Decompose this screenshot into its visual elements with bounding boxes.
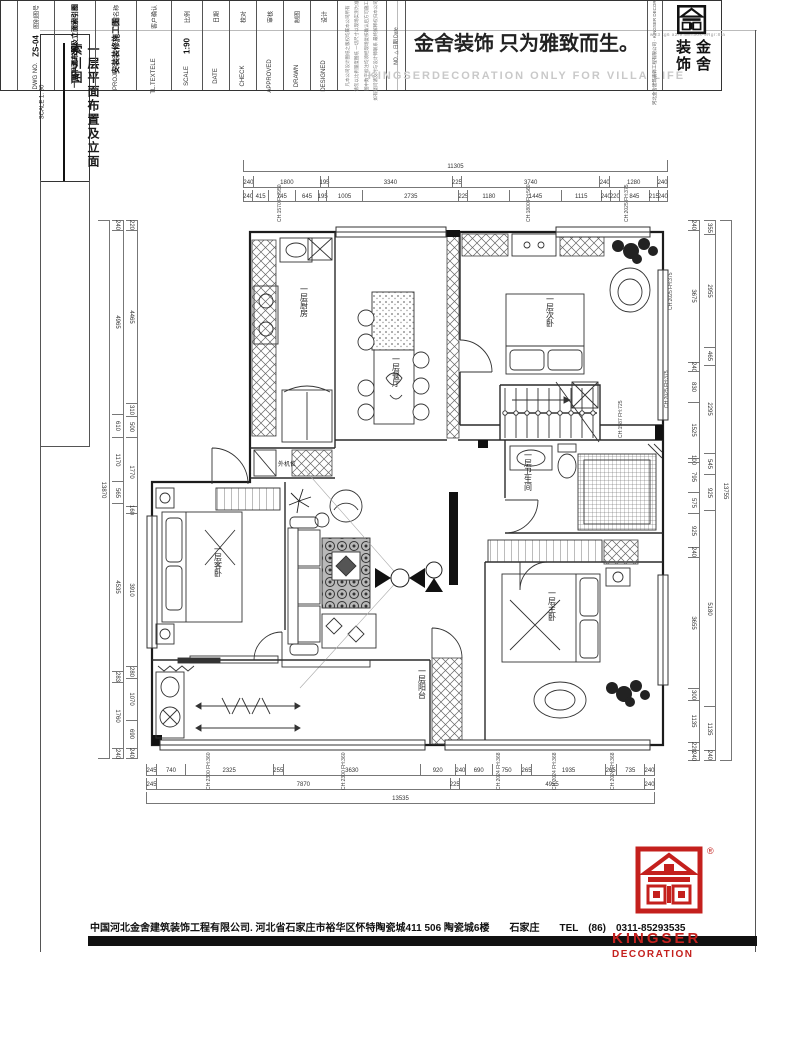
tb-label-cn: 校对: [239, 11, 248, 23]
company-address-line: 中国河北金舍建筑装饰工程有限公司. 河北省石家庄市裕华区怀特陶瓷城411 506…: [90, 919, 690, 934]
annotation: CH:2024 FH:368: [496, 752, 502, 790]
room-label-master: 一层主卧: [548, 589, 556, 622]
brand-kingser-text: KINGSER: [612, 930, 701, 947]
tb-label-en: DRAWN: [294, 65, 300, 87]
balcony-fixtures: [156, 656, 370, 738]
stamp-char-left: 装饰: [672, 39, 693, 73]
annotation: CH:2025 FH:375: [664, 370, 670, 408]
tb-label-en: APPROVED: [267, 59, 273, 92]
tb-label-en: TL.TEXTELE: [151, 58, 157, 93]
tb-label-en: TITLE: [72, 68, 78, 84]
tb-note: 如有疑问请及时与设计师联系 最终解释权归本公司所有: [373, 0, 379, 100]
annotation: CH:1587 FH:725: [618, 400, 624, 438]
brand-watermark: KINGSERDECORATION ONLY FOR VILLA LIFE: [368, 70, 685, 82]
guest-furniture: [156, 488, 280, 671]
frame-left-line: [40, 446, 41, 952]
stairs: [503, 382, 599, 442]
tb-label-cn: 日期: [212, 11, 221, 23]
room-label-kitchen: 一层厨房: [300, 285, 308, 318]
annotation: CH:1570 FH:950: [277, 184, 283, 222]
tb-col-approved: 审核 APPROVED: [257, 1, 284, 90]
annotation: CH:2300 FH:360: [341, 752, 347, 790]
annotation: CH:2024 FH:368: [610, 752, 616, 790]
sheet-title-box-empty: [40, 180, 90, 447]
tb-label-cn: 比例: [183, 11, 192, 23]
tb-value: ZS-04: [32, 35, 41, 57]
floor-plan-drawing: 一层厨房 一层餐厅 一层次卧 一层卫生间 一层主卧 一层客卧 一层阳台 外机位 …: [90, 148, 770, 820]
tb-label-en: CHECK: [240, 65, 246, 86]
room-label-balcony: 一层阳台: [418, 667, 426, 700]
tb-label-en: DESIGNED: [321, 60, 327, 91]
annotation: CH:2025 FH:375: [624, 184, 630, 222]
tb-value: 1:90: [183, 37, 192, 53]
tb-col-scale: 比例 1:90 SCALE: [172, 1, 203, 90]
drawing-sheet: 一层平面布置及立面索引图 SCALE 1: 90 w:r3 tg6 a2/9:5…: [0, 0, 800, 1052]
tb-col-dwg-no: 图别图号 ZS-04 DWG NO.: [18, 1, 55, 90]
tb-label-en: SCALE: [184, 66, 190, 86]
tb-col-project: 工程名称 安装装修施工图 PROJECT: [96, 1, 137, 90]
tb-label-cn: 图别图号: [32, 5, 41, 29]
tb-label-cn: 制图: [293, 11, 302, 23]
tb-slogan-area: 金舍装饰 只为雅致而生。 KINGSERDECORATION ONLY FOR …: [406, 1, 648, 90]
annotation: CH:2024 FH:368: [552, 752, 558, 790]
brand-slogan: 金舍装饰 只为雅致而生。: [414, 27, 639, 56]
tb-col-check: 校对 CHECK: [230, 1, 257, 90]
room-label-guest: 一层客卧: [214, 545, 222, 578]
bedroom2-furniture: [506, 234, 658, 408]
tb-col-confirm: 客户确认 TL.TEXTELE: [137, 1, 172, 90]
annotation: CH:2025 FH:375: [668, 272, 674, 310]
tb-note: 凡本公司设计图纸之版权均属本公司所有: [345, 5, 351, 86]
brand-decoration-text: DECORATION: [612, 949, 693, 960]
tb-revision-header: NO. △ 日期 Date: [393, 27, 400, 64]
master-furniture: [488, 540, 650, 718]
tb-label-cn: 审核: [266, 11, 275, 23]
tb-col-designed: 设计 DESIGNED: [311, 1, 338, 90]
annotation: CH:1800 FH:560: [526, 184, 532, 222]
tb-note: 请勿以比例量度图纸 一切尺寸以现场实测为准: [354, 0, 360, 91]
registered-mark: ®: [707, 846, 714, 856]
title-block-spacer: [1, 1, 18, 90]
tb-col-title: 图纸名称 一层平面布置及立面索引图 TITLE: [55, 1, 96, 90]
room-label-bath: 一层卫生间: [524, 451, 532, 492]
tb-col-drawn: 制图 DRAWN: [284, 1, 311, 90]
elevation-markers: [375, 562, 443, 592]
room-label-dining: 一层餐厅: [392, 355, 400, 388]
tb-label-en: PROJECT: [113, 62, 119, 90]
tb-label-en: DWG NO.: [33, 62, 39, 89]
tb-company-text: 河北金舍建筑装饰工程有限公司 · KINGSER DECORATION: [652, 0, 658, 105]
tb-col-date: 日期 DATE: [203, 1, 230, 90]
room-label-bedroom2: 一层次卧: [546, 295, 554, 328]
title-block: 图别图号 ZS-04 DWG NO. 图纸名称 一层平面布置及立面索引图 TIT…: [0, 0, 722, 91]
tb-label-cn: 设计: [320, 11, 329, 23]
kingser-logo-icon: [635, 846, 705, 918]
tb-label-cn: 客户确认: [150, 5, 159, 29]
tb-label-en: DATE: [213, 68, 219, 84]
annotation: CH:2300 FH:360: [206, 752, 212, 790]
stamp-char-right: 金舍: [692, 39, 713, 73]
tb-company-col: 河北金舍建筑装饰工程有限公司 · KINGSER DECORATION: [648, 1, 663, 90]
kingser-stamp-icon: [677, 5, 707, 35]
room-label-ac-unit: 外机位: [278, 460, 296, 468]
tb-stamp-col: 金舍 装饰: [663, 1, 721, 90]
